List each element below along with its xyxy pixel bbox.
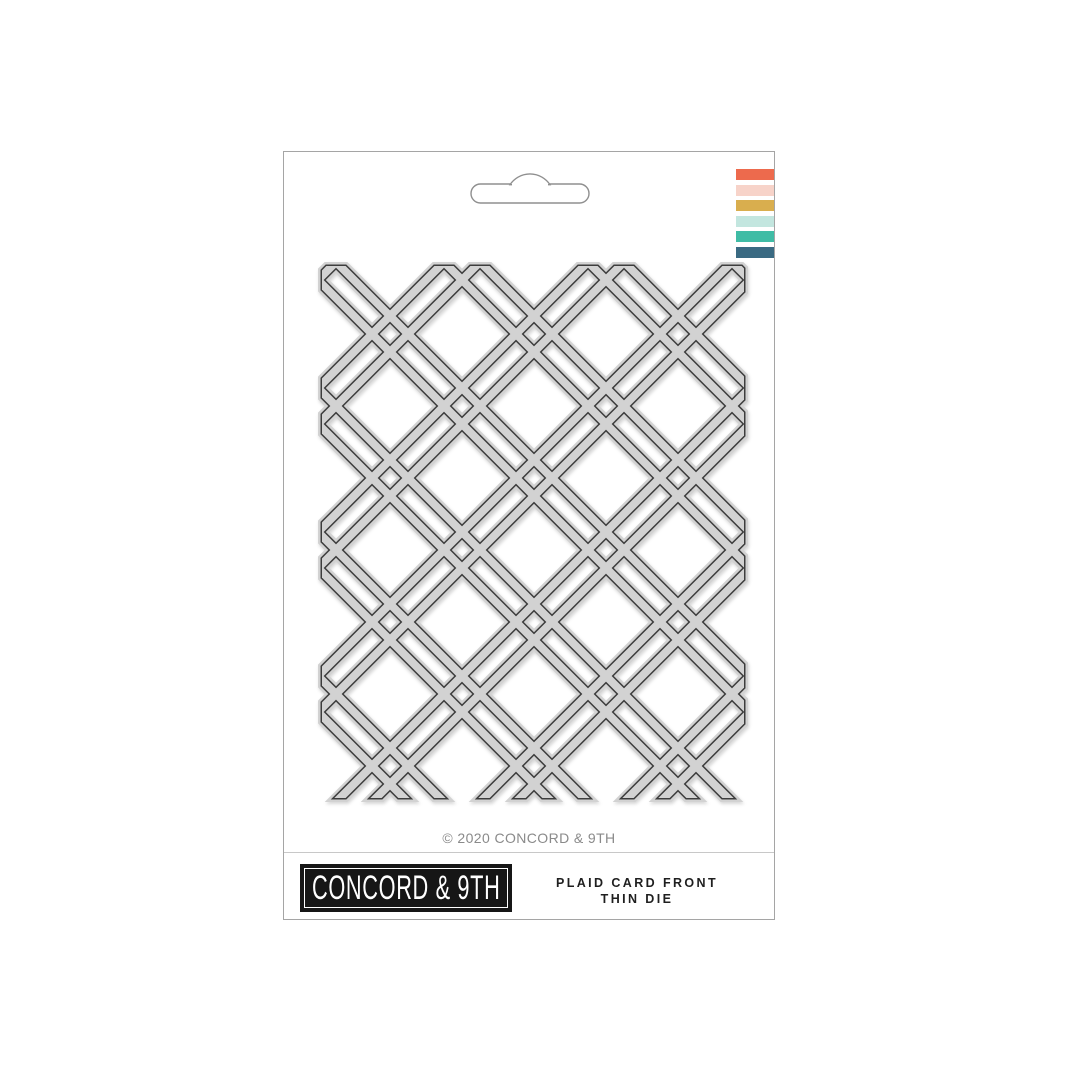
product-title: PLAID CARD FRONT THIN DIE <box>512 875 762 907</box>
packaging-card: © 2020 CONCORD & 9TH CONCORD & 9TH PLAID… <box>283 151 775 920</box>
brand-color-stripes <box>736 169 774 263</box>
color-stripe <box>736 185 774 196</box>
page-background: { "colors": { "page_bg": "#ffffff", "car… <box>0 0 1081 1081</box>
brand-logo-text: CONCORD & 9TH <box>312 869 500 908</box>
hang-tab-bump <box>510 174 550 185</box>
hang-tab-slot <box>471 184 589 203</box>
brand-logo: CONCORD & 9TH <box>300 864 512 912</box>
product-title-line2: THIN DIE <box>512 891 762 907</box>
color-stripe <box>736 169 774 180</box>
divider-line <box>284 852 774 853</box>
color-stripe <box>736 200 774 211</box>
color-stripe <box>736 231 774 242</box>
brand-logo-border: CONCORD & 9TH <box>304 868 508 908</box>
product-title-line1: PLAID CARD FRONT <box>512 875 762 891</box>
plaid-die <box>318 262 748 802</box>
copyright-text: © 2020 CONCORD & 9TH <box>284 830 774 846</box>
color-stripe <box>736 247 774 258</box>
euro-slot-hang-tab <box>460 158 600 208</box>
color-stripe <box>736 216 774 227</box>
